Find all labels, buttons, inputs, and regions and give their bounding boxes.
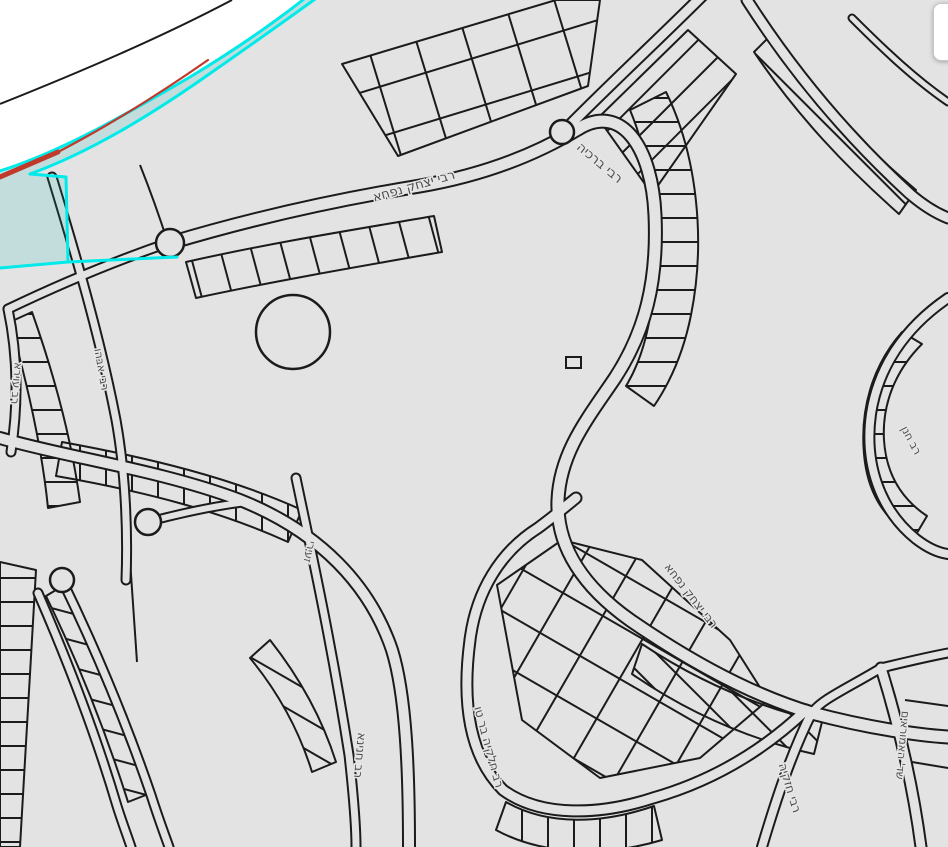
- selection-quad-fill: [0, 171, 68, 268]
- culdesac-bulb: [50, 568, 74, 592]
- plaza-circle: [256, 295, 330, 369]
- culdesac-bulb: [550, 120, 574, 144]
- map-canvas[interactable]: רבי יצחק נפחארבי ברכיהרב עוירארבי אבהוזע…: [0, 0, 948, 847]
- culdesac-bulb: [156, 229, 184, 257]
- corner-panel[interactable]: [933, 3, 948, 61]
- culdesac-bulb: [135, 509, 161, 535]
- map-viewport[interactable]: רבי יצחק נפחארבי ברכיהרב עוירארבי אבהוזע…: [0, 0, 948, 847]
